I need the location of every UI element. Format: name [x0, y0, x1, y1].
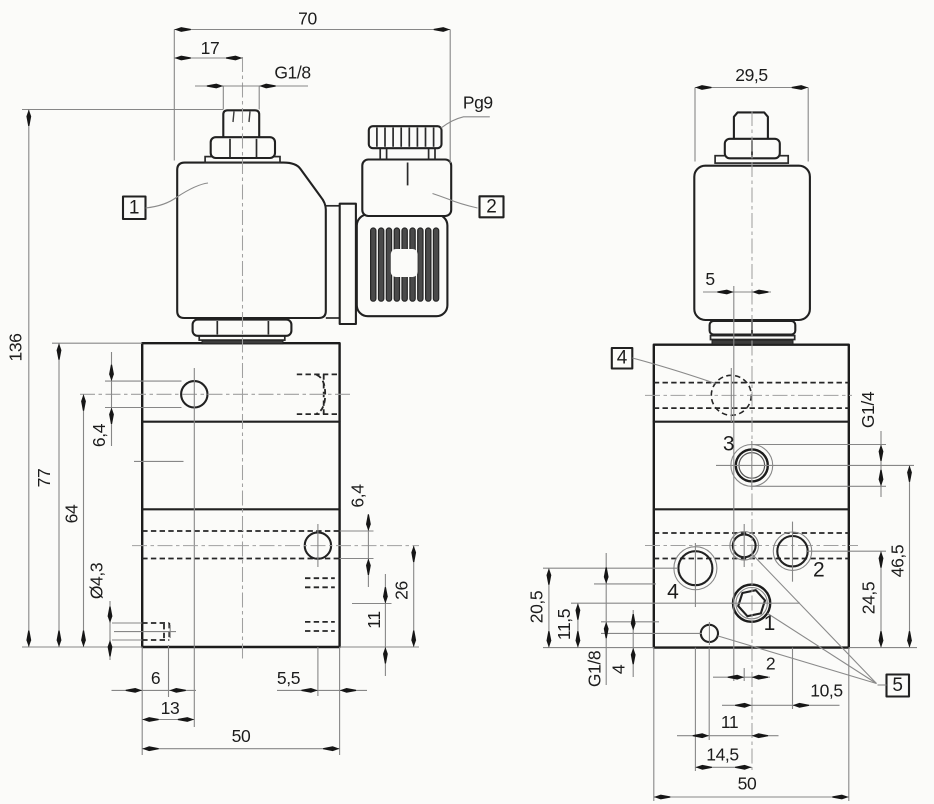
svg-text:70: 70 [298, 9, 317, 29]
svg-text:77: 77 [34, 469, 54, 488]
svg-text:17: 17 [201, 38, 220, 58]
svg-text:1: 1 [129, 198, 140, 219]
svg-text:29,5: 29,5 [735, 65, 767, 85]
svg-text:13: 13 [161, 698, 180, 718]
svg-text:64: 64 [62, 504, 82, 523]
svg-text:11: 11 [364, 611, 384, 628]
svg-text:10,5: 10,5 [810, 681, 842, 701]
svg-text:2: 2 [813, 559, 825, 582]
svg-text:50: 50 [738, 774, 757, 794]
svg-text:11: 11 [721, 712, 738, 732]
svg-text:1: 1 [764, 612, 776, 635]
svg-text:46,5: 46,5 [888, 545, 908, 577]
svg-text:136: 136 [6, 334, 26, 362]
svg-text:G1/8: G1/8 [585, 651, 605, 687]
svg-text:Pg9: Pg9 [463, 93, 493, 113]
svg-text:4: 4 [667, 581, 679, 604]
svg-text:20,5: 20,5 [527, 591, 547, 623]
svg-text:2: 2 [486, 197, 497, 218]
svg-text:5,5: 5,5 [277, 668, 300, 688]
svg-text:6,4: 6,4 [348, 484, 368, 508]
svg-text:4: 4 [617, 348, 628, 369]
svg-text:11,5: 11,5 [554, 609, 574, 640]
svg-text:50: 50 [232, 726, 251, 746]
svg-text:5: 5 [705, 269, 714, 289]
svg-text:6,4: 6,4 [89, 423, 109, 447]
svg-text:3: 3 [723, 433, 735, 456]
svg-text:4: 4 [609, 664, 629, 674]
svg-text:26: 26 [392, 581, 412, 600]
svg-text:2: 2 [766, 654, 775, 674]
svg-text:Ø4,3: Ø4,3 [87, 563, 107, 599]
svg-text:5: 5 [892, 675, 903, 696]
svg-text:24,5: 24,5 [859, 582, 879, 614]
svg-text:G1/8: G1/8 [274, 63, 310, 83]
svg-text:G1/4: G1/4 [858, 391, 878, 428]
svg-text:6: 6 [151, 668, 160, 688]
svg-text:14,5: 14,5 [706, 745, 738, 765]
